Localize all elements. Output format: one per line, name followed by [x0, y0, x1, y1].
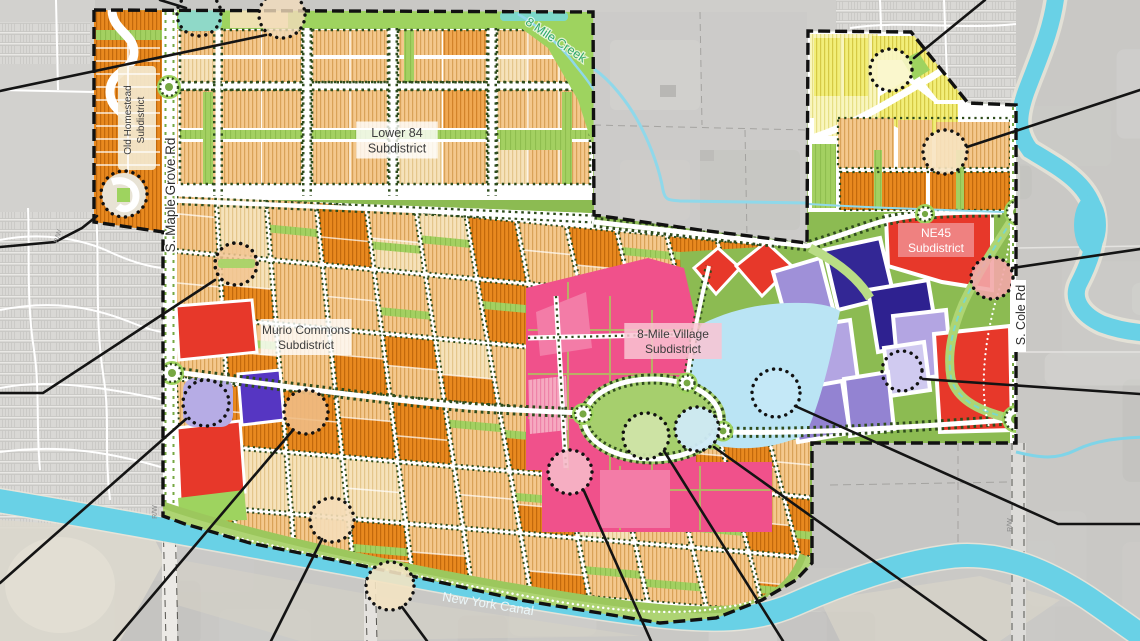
svg-text:Lower 84: Lower 84 [371, 126, 422, 140]
svg-text:Subdistrict: Subdistrict [368, 142, 427, 156]
svg-text:R/W: R/W [1007, 518, 1014, 532]
svg-text:S. Cole Rd: S. Cole Rd [1014, 285, 1028, 345]
svg-text:Old Homestead: Old Homestead [123, 85, 134, 154]
svg-text:Subdistrict: Subdistrict [908, 241, 965, 255]
svg-text:Subdistrict: Subdistrict [136, 96, 147, 143]
svg-text:NE45: NE45 [921, 226, 951, 240]
svg-text:S. Maple Grove Rd: S. Maple Grove Rd [163, 138, 178, 253]
svg-text:8-Mile Village: 8-Mile Village [637, 327, 709, 341]
svg-text:Murio Commons: Murio Commons [262, 323, 350, 337]
svg-text:Subdistrict: Subdistrict [645, 342, 702, 356]
svg-text:Subdistrict: Subdistrict [278, 338, 335, 352]
svg-text:R/W: R/W [152, 505, 159, 519]
